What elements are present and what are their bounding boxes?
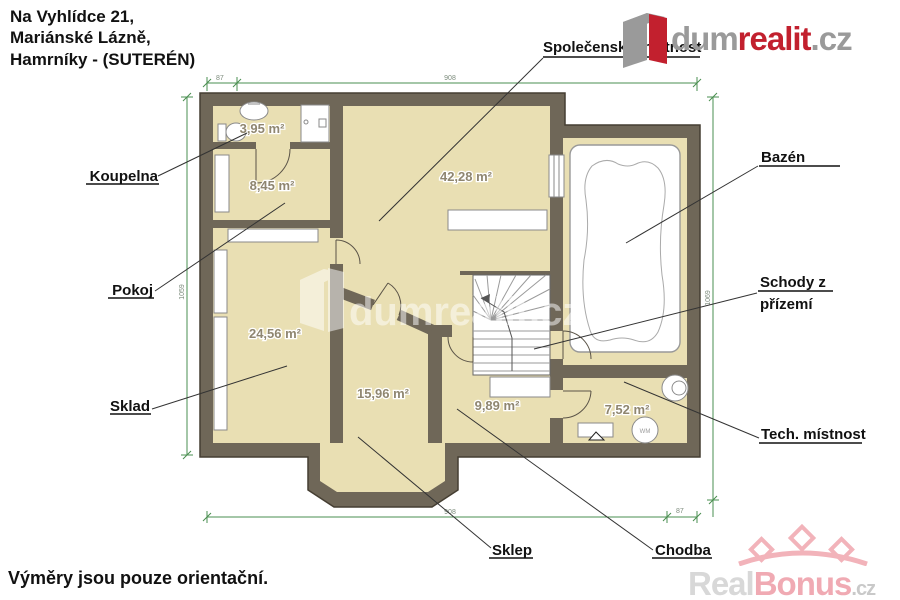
- logo-cz: .cz: [811, 20, 852, 57]
- table-icon: [448, 210, 547, 230]
- address-line-1: Na Vyhlídce 21,: [10, 6, 195, 27]
- label-schody-2: přízemí: [760, 296, 813, 313]
- address-line-3: Hamrníky - (SUTERÉN): [10, 49, 195, 70]
- appliance-label: WM: [640, 429, 651, 435]
- area-tech: 7,52 m²: [605, 402, 650, 417]
- watermark-text: dumrealit.cz: [349, 290, 582, 334]
- label-tech: Tech. místnost: [761, 426, 866, 443]
- floorplan-canvas: 87 908 1059 1069 908 87: [0, 0, 900, 600]
- shelf-icon: [228, 229, 318, 242]
- label-pokoj: Pokoj: [112, 282, 153, 299]
- realbonus-watermark: RealBonus.cz: [688, 524, 893, 600]
- address-line-2: Mariánské Lázně,: [10, 27, 195, 48]
- dim-right: 1069: [705, 290, 712, 306]
- dumrealit-logo: dumrealit.cz: [615, 8, 852, 68]
- label-koupelna: Koupelna: [90, 168, 159, 185]
- area-pokoj: 8,45 m²: [250, 178, 295, 193]
- realbonus-real: Real: [688, 565, 754, 600]
- label-sklep: Sklep: [492, 542, 532, 559]
- window-icon: [549, 155, 564, 197]
- label-schody-1: Schody z: [760, 274, 826, 291]
- wardrobe-icon: [215, 155, 229, 212]
- dumrealit-logo-text: dumrealit.cz: [671, 10, 852, 68]
- toilet-icon: [218, 124, 226, 141]
- realbonus-cz: .cz: [851, 578, 875, 600]
- area-sklep: 15,96 m²: [357, 386, 410, 401]
- area-chodba: 9,89 m²: [475, 398, 520, 413]
- sink-icon: [240, 102, 268, 120]
- understairs-niche: [490, 377, 550, 397]
- shelf-icon: [214, 250, 227, 313]
- label-bazen: Bazén: [761, 149, 805, 166]
- dumrealit-logo-icon: [615, 8, 671, 68]
- realbonus-bonus: Bonus: [754, 565, 852, 600]
- floorplan-page: 87 908 1059 1069 908 87: [0, 0, 900, 600]
- address-title: Na Vyhlídce 21, Mariánské Lázně, Hamrník…: [10, 6, 195, 70]
- realbonus-text: RealBonus.cz: [688, 571, 893, 600]
- dim-top-small: 87: [216, 75, 224, 82]
- dim-top: 908: [444, 75, 456, 82]
- dim-left: 1059: [179, 284, 186, 300]
- label-sklad: Sklad: [110, 398, 150, 415]
- dim-bottom-small: 87: [676, 508, 684, 515]
- area-spolecenska: 42,28 m²: [440, 169, 493, 184]
- shelf-icon: [214, 317, 227, 430]
- disclaimer-text: Výměry jsou pouze orientační.: [8, 568, 268, 589]
- realbonus-crown-icon: [736, 524, 871, 566]
- logo-realit: realit: [738, 20, 811, 57]
- pool-icon: [570, 145, 680, 352]
- logo-dum: dum: [671, 20, 738, 57]
- area-sklad: 24,56 m²: [249, 326, 302, 341]
